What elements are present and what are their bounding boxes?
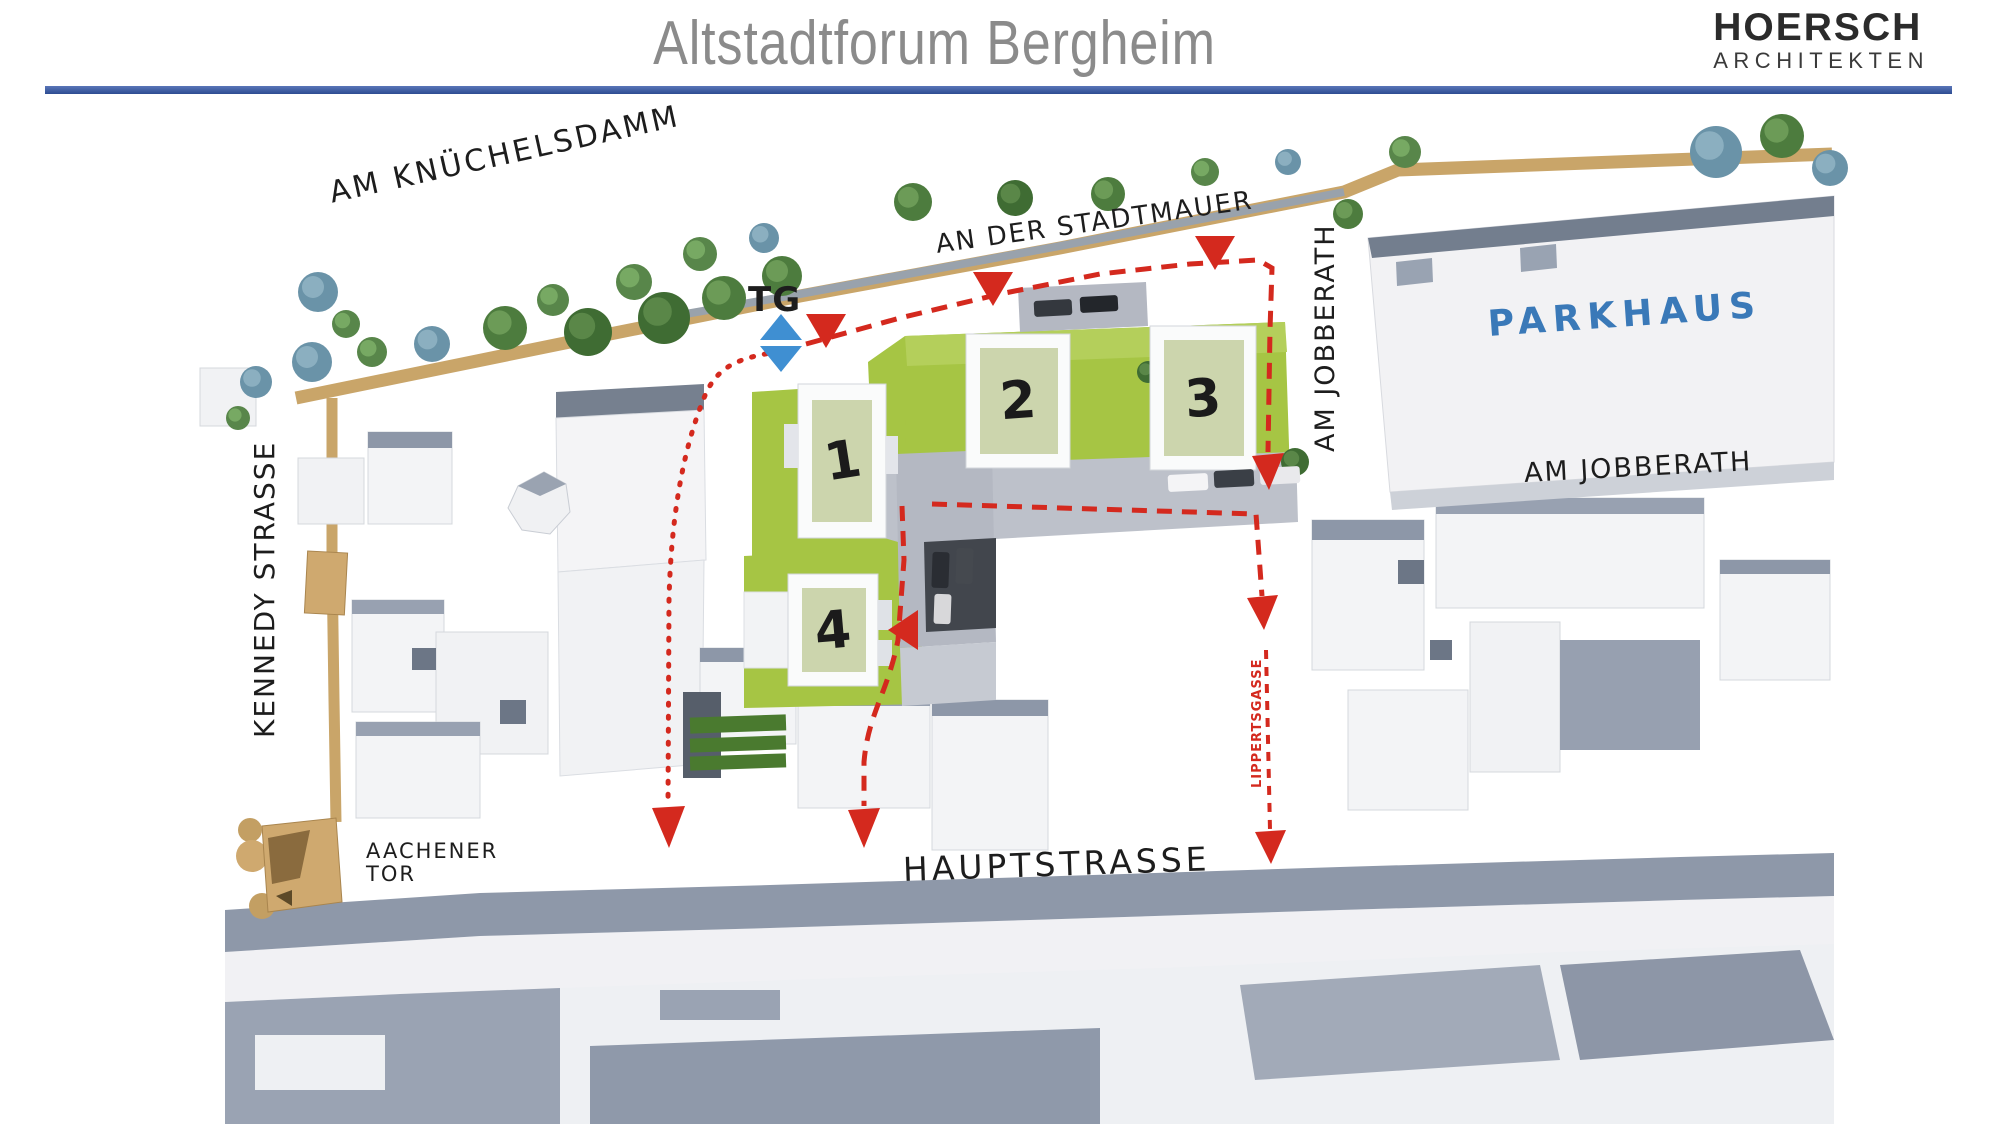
building-3-number: 3 <box>1183 368 1223 430</box>
underground-garage-label: TG <box>748 280 801 320</box>
route-lippertsgasse <box>1266 650 1270 830</box>
aachener-tor-label: AACHENER TOR <box>366 840 498 886</box>
street-label-lippertsgasse: LIPPERTSGASSE <box>1250 659 1265 788</box>
aachener-tor-label-line1: AACHENER <box>366 840 498 863</box>
tg-down-arrow-icon <box>760 346 802 372</box>
aachener-tor-structure <box>236 818 342 919</box>
building-3: 3 <box>1150 326 1256 470</box>
site-plan-rendering: 1 2 3 4 <box>0 0 1999 1124</box>
presentation-slide: Altstadtforum Bergheim HOERSCH ARCHITEKT… <box>0 0 1999 1124</box>
entrance-triangle-icon <box>973 272 1013 306</box>
street-label-kennedy-strasse: KENNEDY STRASSE <box>248 441 281 738</box>
aachener-tor-label-line2: TOR <box>366 863 498 886</box>
street-label-am-jobberath-vertical: AM JOBBERATH <box>1310 223 1341 452</box>
hauptstrasse-buildings <box>225 853 1834 1124</box>
building-2: 2 <box>966 334 1070 468</box>
building-4-number: 4 <box>812 600 853 663</box>
building-2-number: 2 <box>998 370 1038 432</box>
site-plan: 1 2 3 4 <box>0 0 1999 1124</box>
building-1: 1 <box>784 384 898 538</box>
